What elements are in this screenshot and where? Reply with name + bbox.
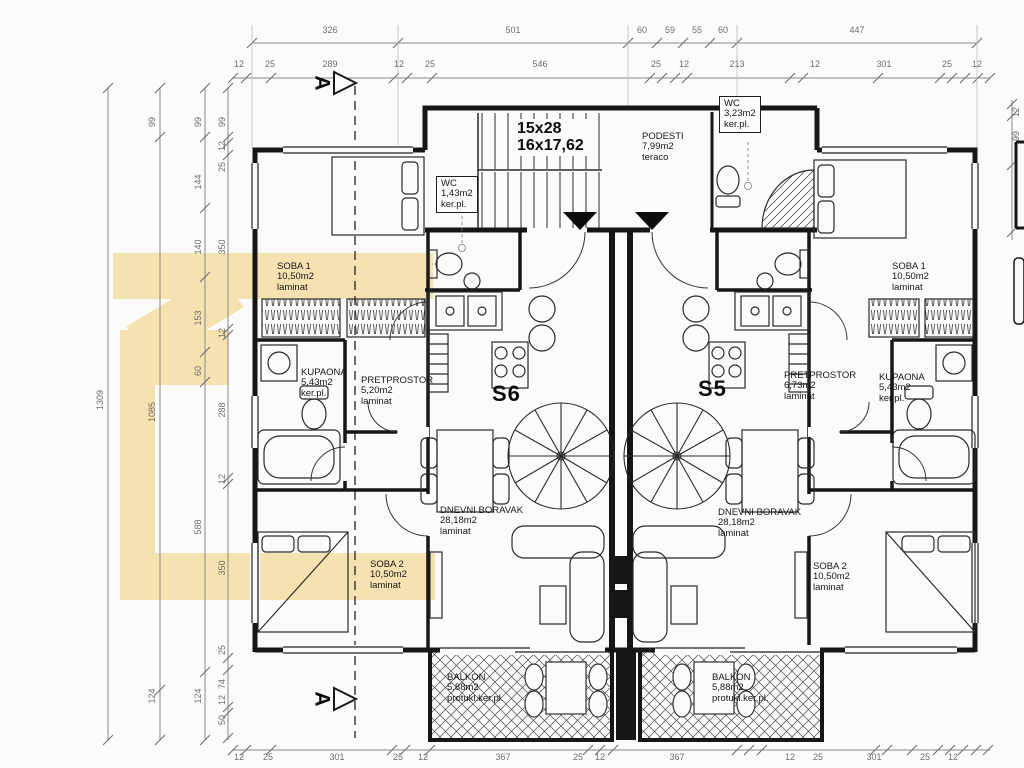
floorplan-canvas: 32650160595560447 1225289122554625122131… xyxy=(0,0,1024,768)
leader-dot xyxy=(745,183,752,190)
stair-direction-arrows xyxy=(563,212,669,230)
floorplan-linework xyxy=(0,0,1024,768)
spiral-stair-left xyxy=(508,403,614,509)
stair-annotation: 15x28 16x17,62 xyxy=(514,119,587,156)
leader-dot xyxy=(459,245,466,252)
shaft xyxy=(614,590,628,618)
stair-line1: 15x28 xyxy=(517,120,584,137)
balconies xyxy=(430,650,822,740)
spiral-stair-right xyxy=(624,403,730,509)
edge-fragments xyxy=(1014,142,1024,324)
shaft xyxy=(614,556,628,584)
stair-line2: 16x17,62 xyxy=(517,137,584,154)
